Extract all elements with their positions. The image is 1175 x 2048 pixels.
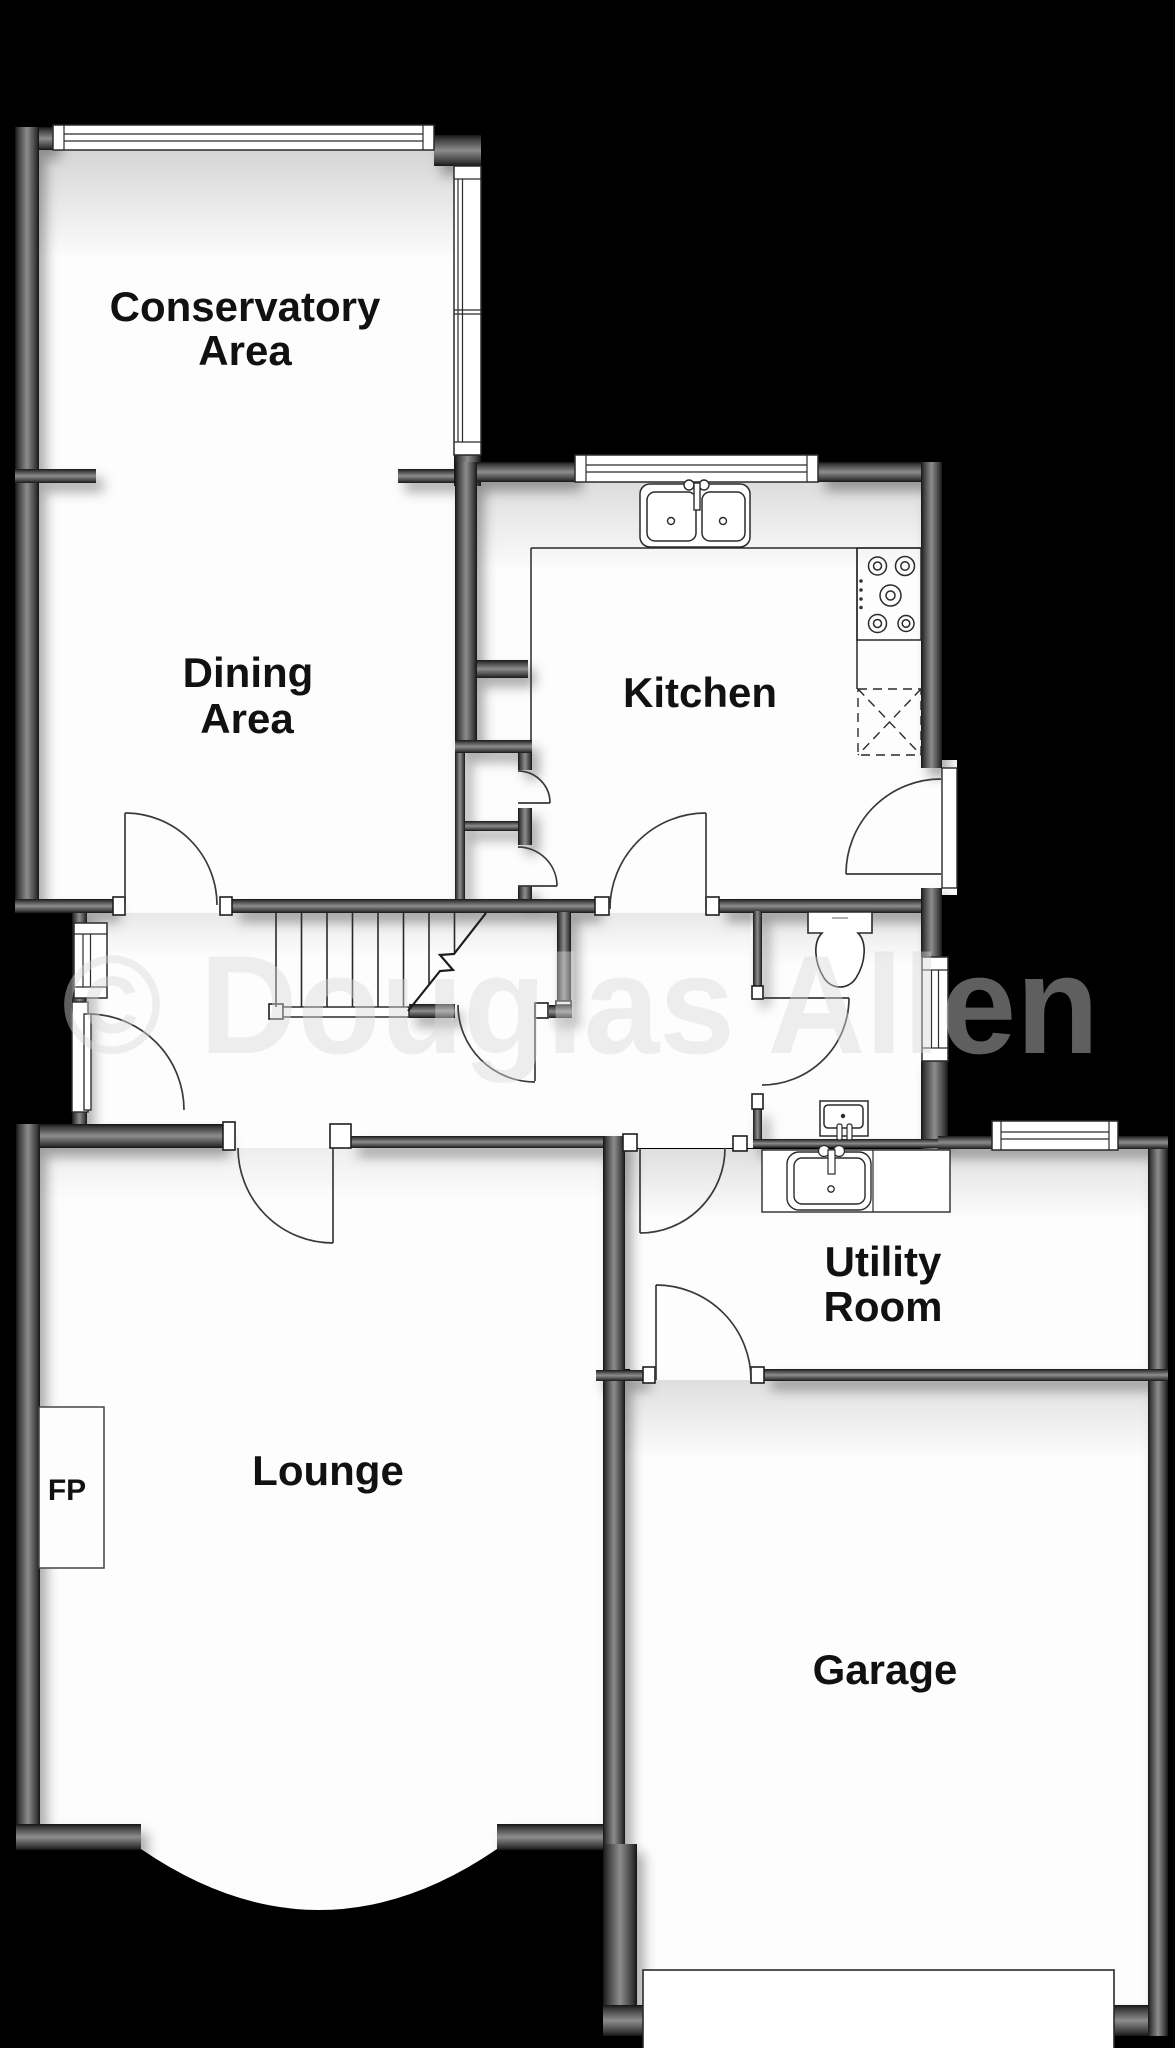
- svg-text:Utility: Utility: [825, 1238, 942, 1285]
- svg-text:Garage: Garage: [813, 1646, 958, 1693]
- svg-text:Conservatory: Conservatory: [110, 283, 381, 330]
- svg-text:Dining: Dining: [183, 649, 314, 696]
- svg-text:Area: Area: [200, 695, 294, 742]
- svg-text:Lounge: Lounge: [252, 1447, 404, 1494]
- svg-text:© Douglas Allen: © Douglas Allen: [62, 926, 1099, 1083]
- svg-text:Area: Area: [198, 327, 292, 374]
- svg-text:Room: Room: [824, 1283, 943, 1330]
- svg-text:Kitchen: Kitchen: [623, 669, 777, 716]
- svg-text:FP: FP: [48, 1474, 86, 1507]
